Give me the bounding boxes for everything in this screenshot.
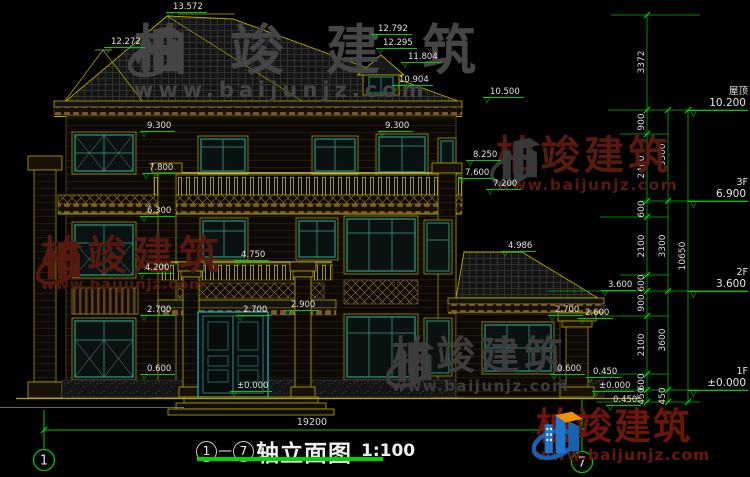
svg-text:600: 600 bbox=[637, 200, 647, 217]
drawing-title: 轴立面图 bbox=[256, 434, 352, 468]
level-triangle-icon: ▽ bbox=[141, 215, 147, 223]
level-triangle-icon: ▽ bbox=[231, 390, 237, 398]
elevation-marker: 2.700▽ bbox=[140, 305, 175, 316]
level-triangle-icon: ▽ bbox=[285, 309, 291, 317]
elevation-marker: 13.572▽ bbox=[166, 2, 207, 13]
level-triangle-icon: ▽ bbox=[467, 159, 473, 167]
floor-level-3f: 3F6.900▽ bbox=[688, 177, 748, 202]
level-triangle-icon: ▽ bbox=[690, 201, 697, 210]
svg-text:900: 900 bbox=[637, 294, 647, 311]
level-triangle-icon: ▽ bbox=[607, 404, 613, 412]
level-triangle-icon: ▽ bbox=[551, 373, 557, 381]
level-triangle-icon: ▽ bbox=[487, 188, 493, 196]
elevation-marker: 0.600▽ bbox=[550, 364, 585, 375]
level-triangle-icon: ▽ bbox=[105, 46, 111, 54]
svg-text:2100: 2100 bbox=[637, 333, 647, 356]
right-dimension-values: 3372 900 2400 600 2100 600 900 2100 600 … bbox=[637, 51, 688, 405]
elevation-marker: 10.500▽ bbox=[483, 87, 524, 98]
svg-text:3600: 3600 bbox=[658, 328, 668, 351]
floor-level-2f: 2F3.600▽ bbox=[688, 267, 748, 292]
level-triangle-icon: ▽ bbox=[549, 314, 555, 322]
svg-text:900: 900 bbox=[637, 113, 647, 130]
level-triangle-icon: ▽ bbox=[690, 110, 697, 119]
elevation-marker: 4.750▽ bbox=[234, 250, 269, 261]
level-triangle-icon: ▽ bbox=[484, 96, 490, 104]
level-triangle-icon: ▽ bbox=[690, 291, 697, 300]
elevation-marker: 12.295▽ bbox=[376, 38, 417, 49]
floor-level-1f: 1F±0.000▽ bbox=[688, 366, 748, 391]
level-triangle-icon: ▽ bbox=[502, 250, 508, 258]
elevation-marker: 2.600▽ bbox=[578, 308, 613, 319]
svg-text:2400: 2400 bbox=[637, 155, 647, 178]
svg-text:600: 600 bbox=[637, 274, 647, 291]
elevation-marker: 4.200▽ bbox=[138, 263, 173, 274]
svg-text:2100: 2100 bbox=[637, 234, 647, 257]
svg-text:3300: 3300 bbox=[658, 143, 668, 166]
elevation-marker: 0.600▽ bbox=[140, 364, 175, 375]
level-triangle-icon: ▽ bbox=[593, 390, 599, 398]
level-triangle-icon: ▽ bbox=[237, 314, 243, 322]
elevation-marker: 4.986▽ bbox=[501, 241, 536, 252]
lattice-panel bbox=[344, 280, 418, 304]
axis-bubble-1: 1 bbox=[40, 454, 48, 469]
level-triangle-icon: ▽ bbox=[377, 47, 383, 55]
elevation-marker: 10.904▽ bbox=[392, 75, 433, 86]
axis-bubble-7: 7 bbox=[578, 456, 586, 471]
level-triangle-icon: ▽ bbox=[602, 289, 608, 297]
elevation-marker: 9.300▽ bbox=[378, 121, 413, 132]
level-triangle-icon: ▽ bbox=[379, 130, 385, 138]
elevation-marker: 3.600▽ bbox=[601, 280, 636, 291]
elevation-marker: 0.450▽ bbox=[586, 367, 621, 378]
level-triangle-icon: ▽ bbox=[141, 373, 147, 381]
total-dimension-label: 19200 bbox=[297, 417, 327, 428]
level-triangle-icon: ▽ bbox=[579, 317, 585, 325]
level-triangle-icon: ▽ bbox=[141, 130, 147, 138]
floor-level-roof: 屋顶10.200▽ bbox=[688, 86, 748, 111]
elevation-marker: 7.600▽ bbox=[458, 168, 493, 179]
level-triangle-icon: ▽ bbox=[143, 172, 149, 180]
level-triangle-icon: ▽ bbox=[141, 314, 147, 322]
title-underline bbox=[197, 457, 383, 461]
level-triangle-icon: ▽ bbox=[393, 84, 399, 92]
entrance-steps bbox=[168, 397, 334, 415]
elevation-marker: 6.300▽ bbox=[140, 206, 175, 217]
level-triangle-icon: ▽ bbox=[167, 11, 173, 19]
level-triangle-icon: ▽ bbox=[459, 177, 465, 185]
level-triangle-icon: ▽ bbox=[235, 259, 241, 267]
elevation-marker: 0.450▽ bbox=[606, 395, 641, 406]
annex bbox=[448, 252, 604, 397]
svg-text:450: 450 bbox=[658, 387, 668, 404]
elevation-marker: 2.700▽ bbox=[236, 305, 271, 316]
elevation-marker: ±0.000▽ bbox=[230, 381, 272, 392]
elevation-marker: ±0.000▽ bbox=[592, 381, 634, 392]
level-triangle-icon: ▽ bbox=[402, 61, 408, 69]
elevation-marker: 12.792▽ bbox=[371, 24, 412, 35]
louver-panel bbox=[72, 288, 138, 314]
drawing-title-block: 1 — 7 轴立面图 1:100 bbox=[196, 434, 415, 468]
svg-text:10650: 10650 bbox=[678, 241, 688, 270]
level-triangle-icon: ▽ bbox=[139, 272, 145, 280]
elevation-marker: 9.300▽ bbox=[140, 121, 175, 132]
cad-canvas: 19200 1 7 3372 900 2400 600 2100 600 900… bbox=[0, 0, 750, 477]
elevation-marker: 11.804▽ bbox=[401, 52, 442, 63]
level-triangle-icon: ▽ bbox=[690, 390, 697, 399]
svg-text:3300: 3300 bbox=[658, 234, 668, 257]
main-eave bbox=[54, 101, 462, 117]
elevation-marker: 12.272▽ bbox=[104, 37, 145, 48]
elevation-marker: 7.200▽ bbox=[486, 179, 521, 190]
elevation-marker: 8.250▽ bbox=[466, 150, 501, 161]
elevation-marker: 7.800▽ bbox=[142, 163, 177, 174]
svg-text:3372: 3372 bbox=[637, 51, 647, 74]
elevation-marker: 2.900▽ bbox=[284, 300, 319, 311]
